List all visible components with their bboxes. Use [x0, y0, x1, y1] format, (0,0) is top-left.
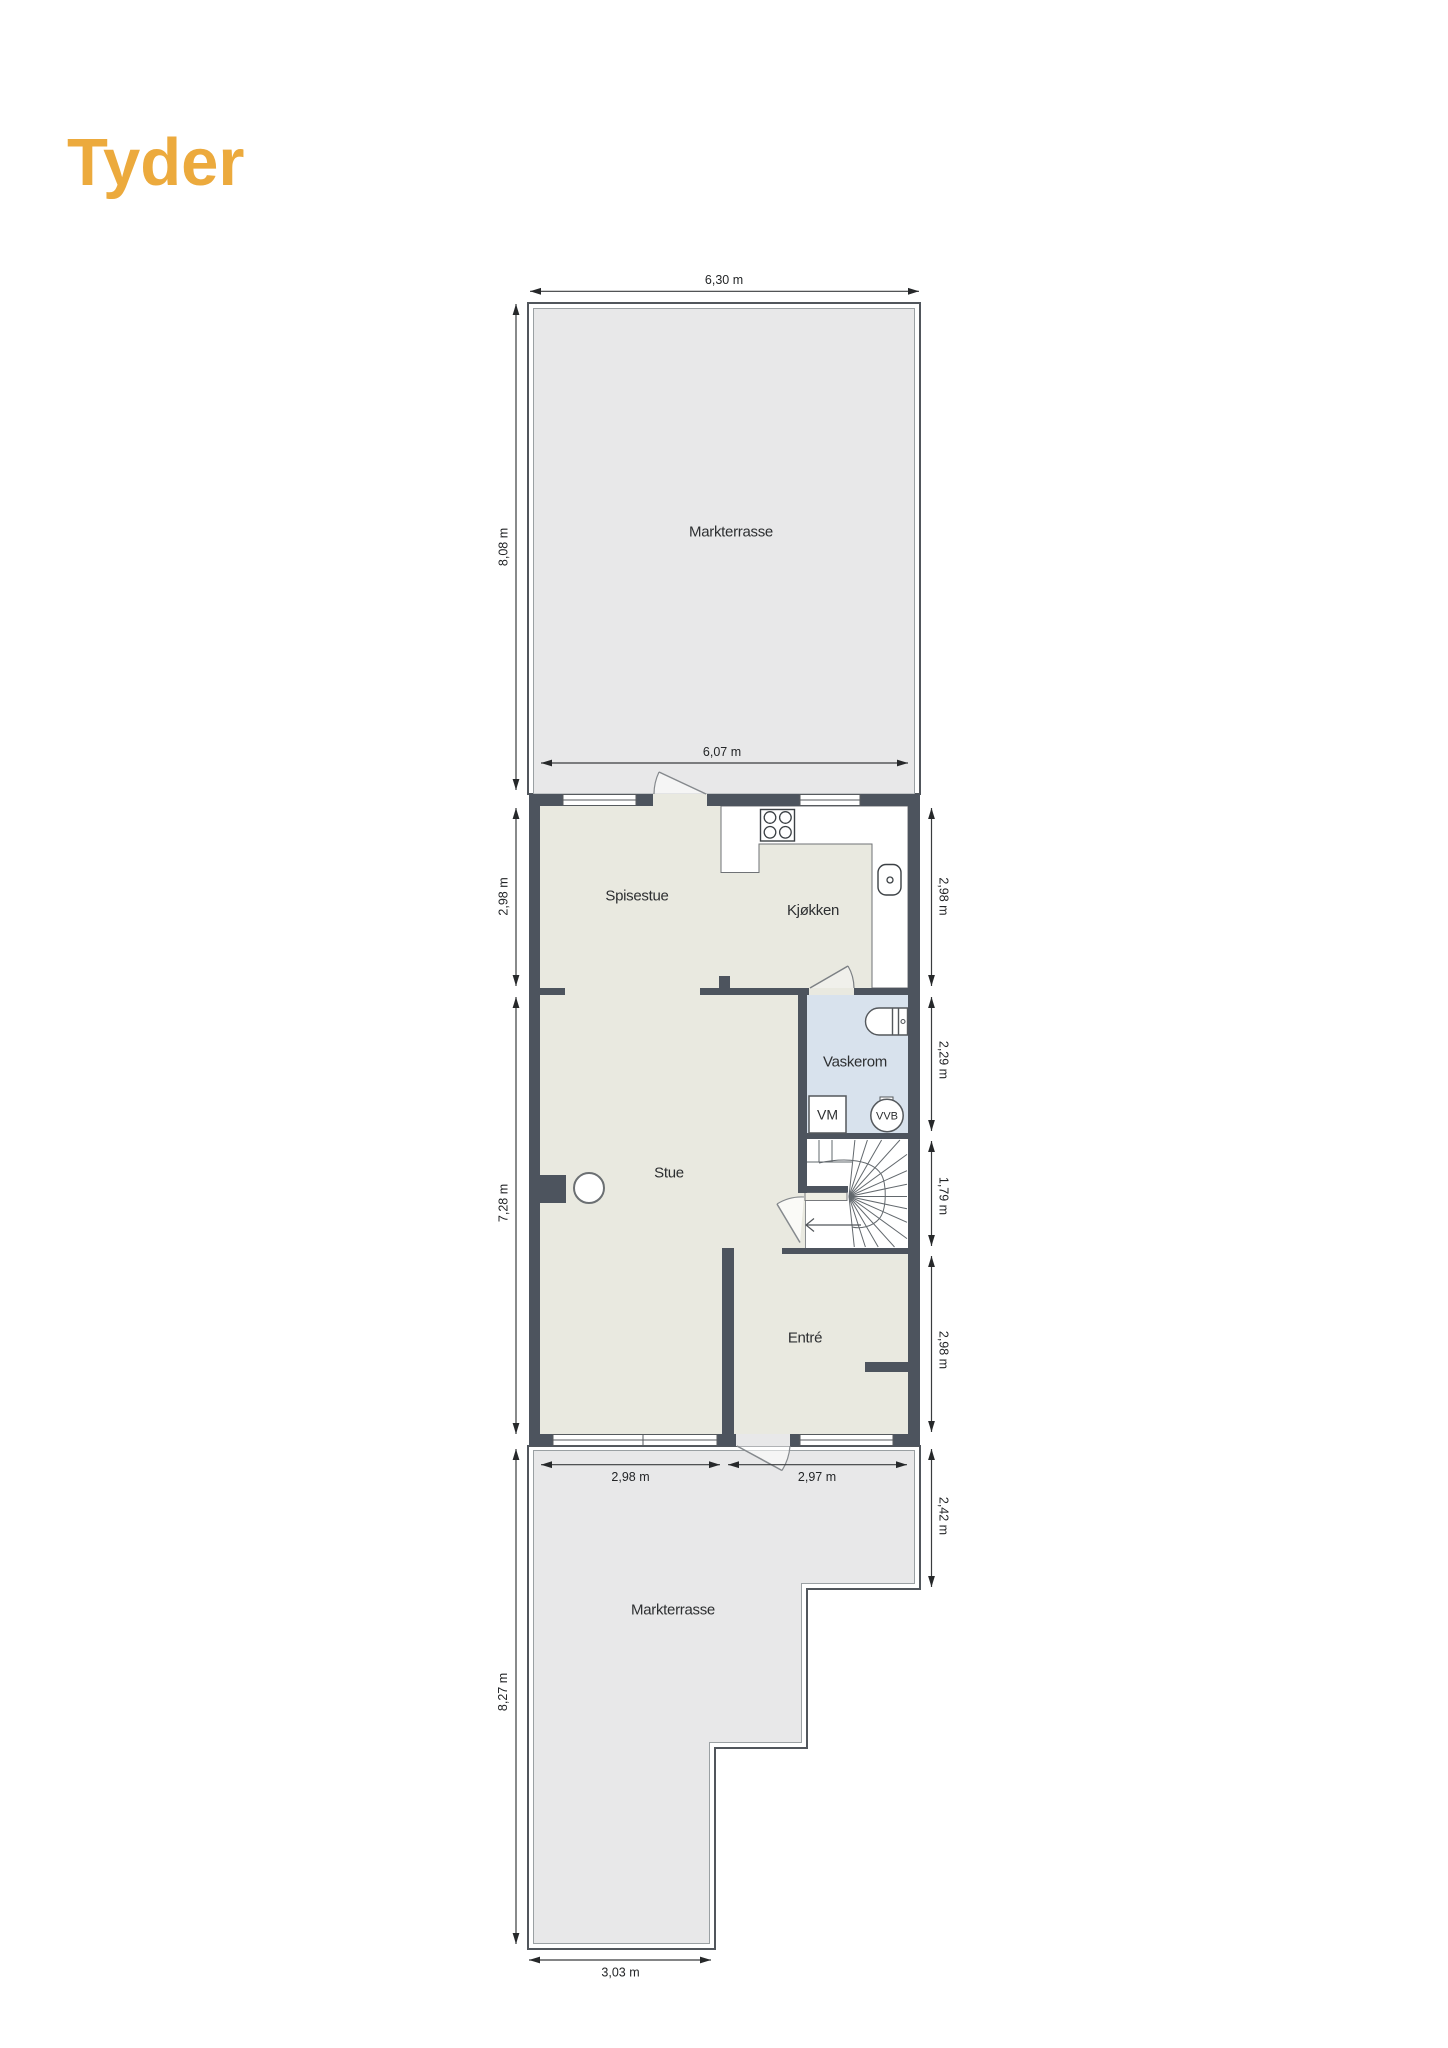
svg-text:8,08 m: 8,08 m — [497, 528, 511, 566]
svg-text:2,97 m: 2,97 m — [798, 1470, 836, 1484]
svg-text:Markterrasse: Markterrasse — [689, 524, 773, 541]
svg-text:VM: VM — [817, 1107, 838, 1123]
svg-text:1,79 m: 1,79 m — [937, 1177, 951, 1215]
svg-text:Entré: Entré — [788, 1329, 822, 1346]
svg-text:6,30 m: 6,30 m — [705, 273, 743, 287]
svg-text:Markterrasse: Markterrasse — [631, 1601, 715, 1618]
svg-text:8,27 m: 8,27 m — [496, 1673, 510, 1711]
svg-text:3,03 m: 3,03 m — [601, 1966, 639, 1980]
svg-text:Stue: Stue — [654, 1164, 684, 1181]
svg-text:2,98 m: 2,98 m — [937, 877, 951, 915]
svg-text:2,29 m: 2,29 m — [937, 1041, 951, 1079]
svg-text:7,28 m: 7,28 m — [497, 1184, 511, 1222]
svg-text:2,98 m: 2,98 m — [497, 877, 511, 915]
svg-text:2,42 m: 2,42 m — [937, 1497, 951, 1535]
svg-text:Kjøkken: Kjøkken — [787, 902, 839, 919]
svg-text:Vaskerom: Vaskerom — [823, 1053, 887, 1070]
svg-text:2,98 m: 2,98 m — [937, 1331, 951, 1369]
svg-text:Spisestue: Spisestue — [605, 887, 668, 904]
svg-text:6,07 m: 6,07 m — [703, 745, 741, 759]
svg-text:2,98 m: 2,98 m — [611, 1470, 649, 1484]
svg-text:VVB: VVB — [876, 1111, 898, 1123]
